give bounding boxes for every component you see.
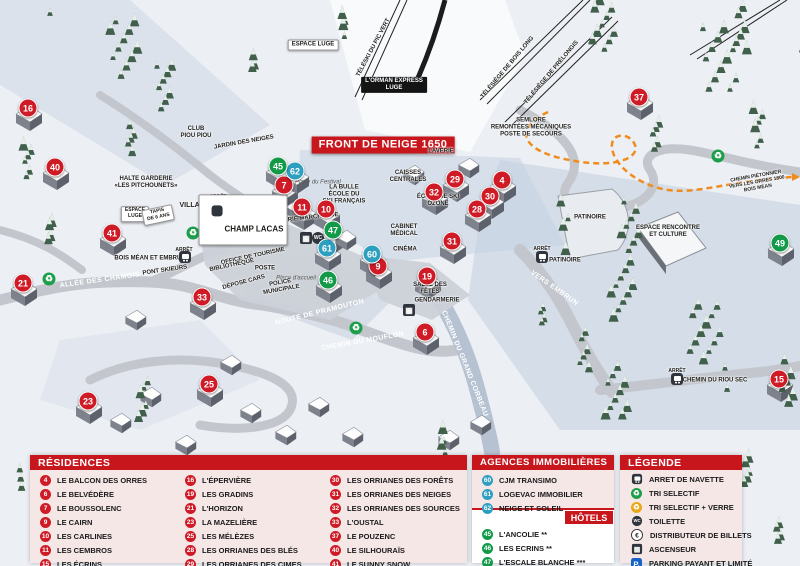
- elev-icon: ▦: [631, 544, 641, 554]
- legend-number-badge: 29: [185, 559, 196, 566]
- legend-number-badge: 46: [482, 543, 493, 554]
- legend-item-label: LE SILHOURAÏS: [347, 546, 405, 555]
- legend-number-badge: 40: [330, 545, 341, 556]
- legend-number-badge: 41: [330, 559, 341, 566]
- legend-item: 15LES ÉCRINS: [30, 557, 175, 566]
- map-marker-49: 49: [771, 234, 790, 253]
- legend-item: 16L'ÉPERVIÈRE: [175, 473, 320, 487]
- legend-item: 31LES ORRIANES DES NEIGES: [320, 487, 465, 501]
- legend-item: 21L'HORIZON: [175, 501, 320, 515]
- map-marker-62: 62: [286, 162, 305, 181]
- map-marker-6: 6: [416, 323, 435, 342]
- legend-item-label: LES ORRIANES DES NEIGES: [347, 490, 451, 499]
- legend-item: 37LE POUZENC: [320, 529, 465, 543]
- legend-item: 47L'ESCALE BLANCHE ***: [472, 555, 614, 566]
- legend-item: 28LES ORRIANES DES BLÉS: [175, 543, 320, 557]
- bus-stop-riou-sec-icon: [671, 373, 683, 385]
- elevator-icon: ▦: [403, 304, 415, 316]
- bus-icon: [631, 474, 641, 484]
- legend-item-label: PARKING PAYANT ET LIMITÉ: [649, 559, 752, 566]
- map-label: PATINOIRE: [549, 257, 581, 264]
- recycle-icon: ♻: [187, 227, 200, 240]
- legend-item-label: LES CEMBROS: [57, 546, 112, 555]
- recy-icon: ♻: [631, 501, 642, 512]
- map-marker-61: 61: [318, 239, 337, 258]
- map-marker-37: 37: [630, 88, 649, 107]
- legend-number-badge: 47: [482, 557, 493, 566]
- legend-item: 29LES ORRIANES DES CIMES: [175, 557, 320, 566]
- map-marker-31: 31: [443, 232, 462, 251]
- legend-item: 46LES ECRINS **: [472, 541, 614, 555]
- legend-item-label: LE BELVÉDÈRE: [57, 490, 114, 499]
- legend-number-badge: 16: [185, 475, 196, 486]
- legend-item: 45L'ANCOLIE **: [472, 527, 614, 541]
- legend-item-label: ASCENSEUR: [649, 545, 696, 554]
- legend-item: 60CJM TRANSIMO: [472, 473, 614, 487]
- legend-item: 9LE CAIRN: [30, 515, 175, 529]
- key-header: LÉGENDE: [620, 455, 742, 470]
- legend-item: 40LE SILHOURAÏS: [320, 543, 465, 557]
- bus-icon: [211, 206, 222, 217]
- legend-item-label: LES MÉLÈZES: [202, 532, 254, 541]
- legend-item-label: LES ORRIANES DES FORÊTS: [347, 476, 453, 485]
- legend-item: 10LES CARLINES: [30, 529, 175, 543]
- legend-number-badge: 30: [330, 475, 341, 486]
- map-label: GENDARMERIE: [414, 297, 459, 304]
- legend-item: ARRET DE NAVETTE: [620, 472, 742, 486]
- bus-stop-label: CHAMP LACAS: [224, 225, 283, 234]
- legend-agencies-panel: AGENCES IMMOBILIÈRES HÔTELS 60CJM TRANSI…: [472, 455, 614, 563]
- legend-item-label: L'HORIZON: [202, 504, 243, 513]
- legend-item-label: NEIGE ET SOLEIL: [499, 504, 563, 513]
- map-label: POSTE: [255, 265, 275, 272]
- legend-number-badge: 15: [40, 559, 51, 566]
- legend-number-badge: 62: [482, 503, 493, 514]
- legend-item-label: LES ORRIANES DES SOURCES: [347, 504, 460, 513]
- map-label: CINÉMA: [393, 246, 417, 253]
- legend-residences-panel: RÉSIDENCES 4LE BALCON DES ORRES6LE BELVÉ…: [30, 455, 467, 563]
- legend-number-badge: 21: [185, 503, 196, 514]
- map-label: Place du Festival: [295, 179, 341, 186]
- legend-number-badge: 4: [40, 475, 51, 486]
- legend-item: P.PARKING PAYANT ET LIMITÉ: [620, 556, 742, 566]
- map-marker-46: 46: [319, 271, 338, 290]
- legend-item: 30LES ORRIANES DES FORÊTS: [320, 473, 465, 487]
- legend-number-badge: 37: [330, 531, 341, 542]
- legend-number-badge: 60: [482, 475, 493, 486]
- map-label: ESPACE RENCONTRE ET CULTURE: [636, 225, 700, 239]
- recycle-icon: ♻: [43, 273, 56, 286]
- legend-item-label: LES GRADINS: [202, 490, 253, 499]
- legend-number-badge: 7: [40, 503, 51, 514]
- legend-item-label: LES CARLINES: [57, 532, 112, 541]
- legend-item-label: LE SUNNY SNOW: [347, 560, 410, 566]
- map-marker-4: 4: [493, 171, 512, 190]
- recycle-icon: ♻: [350, 322, 363, 335]
- bus-stop-champ-lacas: CHAMP LACAS: [199, 194, 288, 245]
- map-label: BOIS MÉAN ET EMBRUN: [114, 255, 185, 262]
- legend-item-label: L'OUSTAL: [347, 518, 384, 527]
- map-marker-45: 45: [269, 157, 288, 176]
- legend-item: 11LES CEMBROS: [30, 543, 175, 557]
- legend-number-badge: 10: [40, 531, 51, 542]
- legend-item-label: TOILETTE: [649, 517, 685, 526]
- park-icon: P.: [631, 557, 642, 566]
- euro-icon: €: [631, 529, 643, 541]
- legend-item: 19LES GRADINS: [175, 487, 320, 501]
- legend-item-label: CJM TRANSIMO: [499, 476, 557, 485]
- map-label: CAISSES CENTRALES: [390, 170, 427, 184]
- legend-item-label: LES ÉCRINS: [57, 560, 102, 566]
- map-marker-16: 16: [19, 99, 38, 118]
- legend-item-label: LES ORRIANES DES CIMES: [202, 560, 302, 566]
- legend-item: 7LE BOUSSOLENC: [30, 501, 175, 515]
- map-marker-15: 15: [770, 370, 789, 389]
- legend-item-label: LE BOUSSOLENC: [57, 504, 122, 513]
- legend-item: 32LES ORRIANES DES SOURCES: [320, 501, 465, 515]
- map-marker-29: 29: [446, 170, 465, 189]
- legend-number-badge: 6: [40, 489, 51, 500]
- legend-number-badge: 32: [330, 503, 341, 514]
- map-marker-41: 41: [103, 224, 122, 243]
- legend-item-label: LOGEVAC IMMOBILIER: [499, 490, 583, 499]
- legend-item-label: L'ANCOLIE **: [499, 530, 547, 539]
- legend-item: WCTOILETTE: [620, 514, 742, 528]
- legend-item: €DISTRIBUTEUR DE BILLETS: [620, 528, 742, 542]
- legend-number-badge: 45: [482, 529, 493, 540]
- agencies-header: AGENCES IMMOBILIÈRES: [472, 455, 614, 470]
- legend-number-badge: 28: [185, 545, 196, 556]
- toil-icon: WC: [631, 516, 641, 526]
- legend-item-label: L'ÉPERVIÈRE: [202, 476, 251, 485]
- legend-item: 33L'OUSTAL: [320, 515, 465, 529]
- resort-map: CHAMP LACAS RÉSIDENCES 4LE BALCON DES OR…: [0, 0, 800, 566]
- map-marker-10: 10: [317, 200, 336, 219]
- map-label: SEMLORE REMONTÉES MÉCANIQUES POSTE DE SE…: [491, 117, 571, 138]
- legend-number-badge: 25: [185, 531, 196, 542]
- map-marker-28: 28: [468, 200, 487, 219]
- map-label: ESPACE LUGE: [288, 39, 339, 50]
- legend-item: ▦ASCENSEUR: [620, 542, 742, 556]
- legend-item-label: LES ECRINS **: [499, 544, 552, 553]
- map-marker-40: 40: [46, 158, 65, 177]
- legend-item: 23LA MAZELIÈRE: [175, 515, 320, 529]
- residences-header: RÉSIDENCES: [30, 455, 467, 470]
- bus-stop-bois-mean-icon: [179, 251, 191, 263]
- legend-item: 62NEIGE ET SOLEIL: [472, 501, 614, 515]
- legend-key-panel: LÉGENDE ARRET DE NAVETTE♻TRI SELECTIF♻TR…: [620, 455, 742, 563]
- legend-item-label: TRI SELECTIF + VERRE: [649, 503, 734, 512]
- map-label: CLUB PIOU PIOU: [180, 126, 211, 140]
- map-marker-60: 60: [363, 245, 382, 264]
- legend-item-label: LE BALCON DES ORRES: [57, 476, 147, 485]
- legend-item: 41LE SUNNY SNOW: [320, 557, 465, 566]
- recg-icon: ♻: [631, 487, 642, 498]
- legend-item-label: L'ESCALE BLANCHE ***: [499, 558, 585, 566]
- map-marker-11: 11: [293, 198, 312, 217]
- map-marker-32: 32: [425, 183, 444, 202]
- map-label: LAVERIE: [428, 148, 454, 155]
- map-marker-33: 33: [193, 288, 212, 307]
- legend-number-badge: 31: [330, 489, 341, 500]
- legend-item: 4LE BALCON DES ORRES: [30, 473, 175, 487]
- legend-item: ♻TRI SELECTIF + VERRE: [620, 500, 742, 514]
- legend-item-label: LE CAIRN: [57, 518, 92, 527]
- map-marker-25: 25: [200, 375, 219, 394]
- map-marker-47: 47: [324, 221, 343, 240]
- map-label: HALTE GARDERIE «LES PITCHOUNETS»: [114, 176, 177, 190]
- legend-number-badge: 61: [482, 489, 493, 500]
- map-marker-23: 23: [79, 392, 98, 411]
- map-label: CABINET MÉDICAL: [390, 224, 417, 238]
- legend-item-label: DISTRIBUTEUR DE BILLETS: [650, 531, 752, 540]
- legend-number-badge: 33: [330, 517, 341, 528]
- map-label: CHEMIN DU RIOU SEC: [683, 377, 748, 384]
- legend-item: 61LOGEVAC IMMOBILIER: [472, 487, 614, 501]
- elevator-icon: ▦: [300, 232, 312, 244]
- legend-number-badge: 9: [40, 517, 51, 528]
- legend-item: ♻TRI SELECTIF: [620, 486, 742, 500]
- map-label: PATINOIRE: [574, 214, 606, 221]
- legend-item: 6LE BELVÉDÈRE: [30, 487, 175, 501]
- legend-item: 25LES MÉLÈZES: [175, 529, 320, 543]
- legend-item-label: LES ORRIANES DES BLÉS: [202, 546, 298, 555]
- legend-item-label: LA MAZELIÈRE: [202, 518, 257, 527]
- bus-stop-patinoire-icon: [536, 251, 548, 263]
- legend-number-badge: 11: [40, 545, 51, 556]
- legend-number-badge: 19: [185, 489, 196, 500]
- map-marker-21: 21: [14, 274, 33, 293]
- legend-item-label: LE POUZENC: [347, 532, 395, 541]
- legend-item-label: TRI SELECTIF: [649, 489, 699, 498]
- recycle-icon: ♻: [712, 150, 725, 163]
- legend-item-label: ARRET DE NAVETTE: [649, 475, 724, 484]
- map-label: L'ORMAN EXPRESS LUGE: [361, 77, 427, 93]
- legend-number-badge: 23: [185, 517, 196, 528]
- map-marker-19: 19: [418, 267, 437, 286]
